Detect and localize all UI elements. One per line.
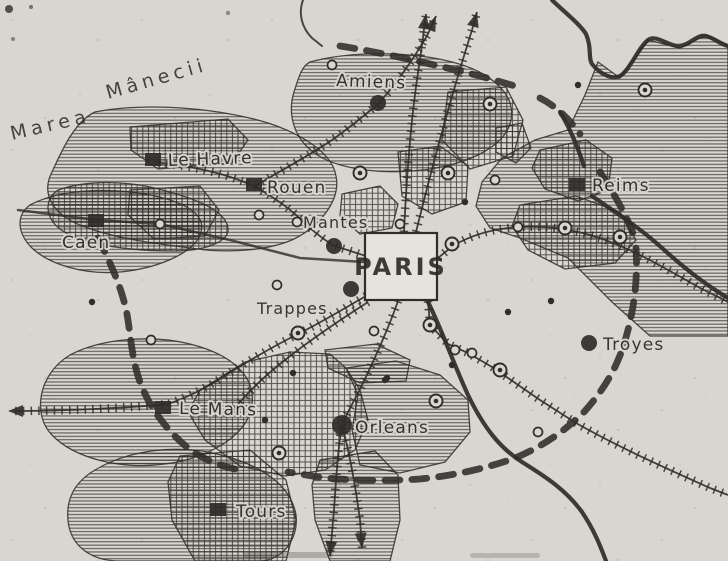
- city-marker-tours: [210, 503, 226, 516]
- city-label-reims: Reims: [592, 176, 650, 196]
- town-circle-symbol: [451, 346, 460, 355]
- station-symbol: [614, 231, 627, 244]
- town-circle-symbol: [468, 349, 477, 358]
- town-circle-symbol: [156, 220, 165, 229]
- city-marker-le-havre: [145, 153, 161, 166]
- city-marker-trappes: [343, 281, 359, 297]
- map-canvas: PARIS Le HavreRouenCaenAmiensMantesTrapp…: [0, 0, 728, 561]
- city-marker-le-mans: [155, 401, 171, 414]
- town-circle-symbol: [491, 176, 500, 185]
- station-symbol: [494, 364, 507, 377]
- city-label-rouen: Rouen: [267, 178, 326, 198]
- station-symbol: [639, 84, 652, 97]
- city-label-trappes: Trappes: [256, 299, 328, 318]
- city-marker-amiens: [370, 95, 386, 111]
- city-label-troyes: Troyes: [602, 335, 664, 355]
- settlement-dot: [505, 309, 511, 315]
- town-circle-symbol: [293, 218, 302, 227]
- city-label-amiens: Amiens: [336, 71, 407, 93]
- town-circle-symbol: [534, 428, 543, 437]
- town-circle-symbol: [370, 327, 379, 336]
- city-label-le-havre: Le Havre: [167, 148, 253, 171]
- scanned-map-page: PARIS Le HavreRouenCaenAmiensMantesTrapp…: [0, 0, 728, 561]
- station-symbol: [559, 222, 572, 235]
- station-symbol: [273, 447, 286, 460]
- station-symbol: [292, 327, 305, 340]
- paris-label: PARIS: [354, 253, 448, 281]
- city-marker-rouen: [246, 178, 262, 191]
- town-circle-symbol: [273, 281, 282, 290]
- settlement-dot: [384, 375, 390, 381]
- city-marker-troyes: [581, 335, 597, 351]
- station-symbol: [446, 238, 459, 251]
- settlement-dot: [575, 82, 581, 88]
- city-label-tours: Tours: [235, 502, 287, 522]
- city-label-mantes: Mantes: [303, 213, 368, 232]
- settlement-dot: [449, 362, 455, 368]
- town-circle-symbol: [396, 220, 405, 229]
- city-marker-caen: [88, 214, 104, 227]
- town-circle-symbol: [147, 336, 156, 345]
- town-circle-symbol: [328, 61, 337, 70]
- station-symbol: [424, 319, 437, 332]
- station-symbol: [442, 167, 455, 180]
- settlement-dot: [290, 370, 296, 376]
- settlement-dot: [462, 199, 468, 205]
- city-marker-mantes: [326, 238, 342, 254]
- city-label-orleans: Orleans: [355, 418, 429, 438]
- station-symbol: [354, 167, 367, 180]
- city-label-caen: Caen: [62, 233, 110, 253]
- town-circle-symbol: [255, 211, 264, 220]
- city-marker-reims: [569, 178, 585, 191]
- settlement-dot: [262, 417, 268, 423]
- paris-box: PARIS: [354, 233, 448, 300]
- station-symbol: [484, 98, 497, 111]
- station-symbol: [430, 395, 443, 408]
- city-label-le-mans: Le Mans: [179, 399, 257, 420]
- city-marker-orleans: [332, 415, 352, 435]
- town-circle-symbol: [514, 223, 523, 232]
- settlement-dot: [548, 298, 554, 304]
- settlement-dot: [89, 299, 95, 305]
